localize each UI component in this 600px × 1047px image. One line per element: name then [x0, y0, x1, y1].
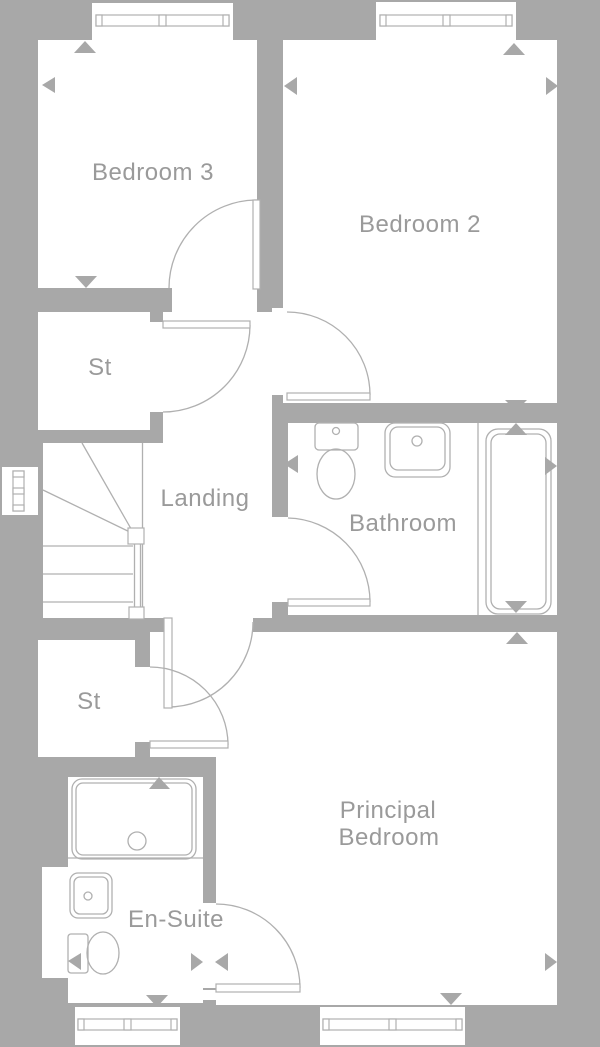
bathroom-label: Bathroom — [349, 510, 457, 537]
storage2-doorway — [135, 667, 150, 742]
ensuite-side-window — [42, 867, 68, 978]
bathroom-doorway — [272, 517, 288, 602]
bedroom3-doorway — [172, 288, 257, 312]
principal-label-line2: Bedroom — [339, 824, 440, 851]
stairs-newel-post-bottom — [129, 607, 144, 619]
storage1-label: St — [88, 354, 112, 381]
ensuite-window — [75, 1007, 180, 1045]
principal-window — [320, 1007, 465, 1045]
floor-plan: Bedroom 3 Bedroom 2 St Landing Bathroom … — [0, 0, 600, 1047]
stairs-side-window — [2, 467, 38, 515]
ensuite-door-jamb — [203, 990, 216, 1000]
principal-doorway — [168, 618, 253, 632]
landing-lower-and-stairs-floor — [43, 443, 272, 618]
bedroom2-window — [376, 2, 516, 40]
storage1-doorway — [150, 322, 163, 412]
bedroom2-label: Bedroom 2 — [359, 211, 481, 238]
bedroom3-label: Bedroom 3 — [92, 159, 214, 186]
bedroom2-doorway — [272, 308, 283, 395]
landing-label: Landing — [161, 485, 250, 512]
principal-label-line1: Principal — [340, 797, 437, 824]
bedroom3-window — [92, 3, 233, 40]
stairs-newel-post-top — [128, 528, 144, 544]
landing-upper-floor — [163, 312, 272, 443]
principal-corridor-floor — [150, 632, 557, 757]
central-wall-corner — [257, 288, 283, 308]
storage2-label: St — [77, 688, 101, 715]
ensuite-label: En-Suite — [128, 906, 224, 933]
principal-strip-floor — [216, 757, 557, 777]
